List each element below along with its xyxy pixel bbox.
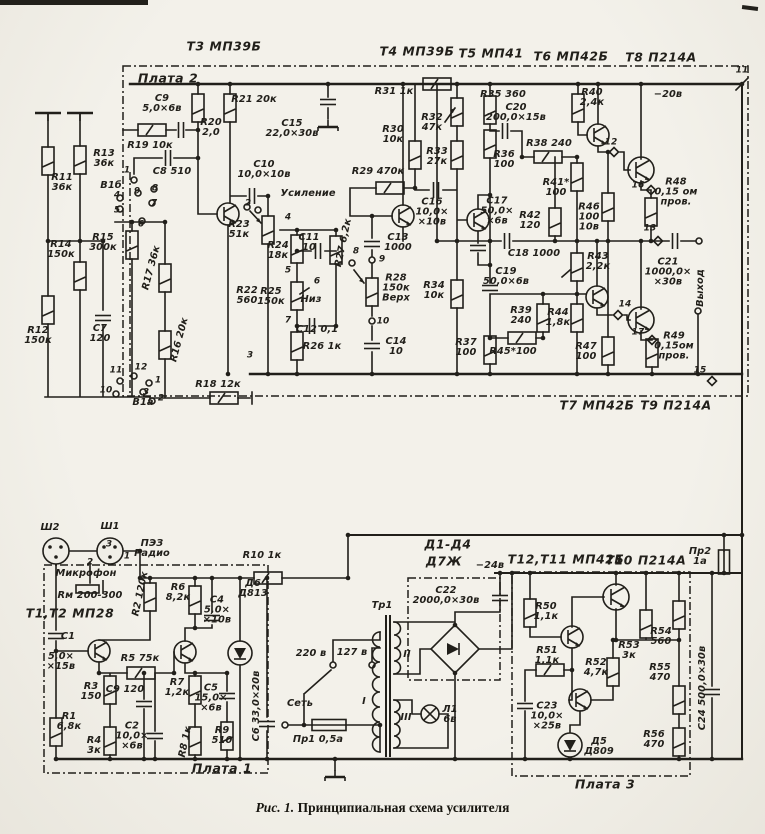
transistor-header-t9: Т9 П214А: [640, 400, 712, 413]
component-label: R41* 100: [543, 178, 570, 198]
component-label: R14 150к: [47, 240, 75, 260]
component-label: R11 36к: [51, 173, 72, 193]
component-label: R19 10к: [127, 141, 173, 151]
tap-127v: 127 в: [337, 648, 368, 658]
component-label: 3: [106, 540, 112, 549]
component-label: R40 2,4к: [580, 88, 604, 108]
component-label: R3 150: [81, 682, 102, 702]
mains-label: Сеть: [287, 699, 313, 709]
winding-3: III: [400, 713, 411, 723]
component-label: R35 360: [480, 90, 526, 100]
transistor-header-t5: Т5 МП41: [458, 48, 523, 61]
component-label: С7 120: [90, 324, 111, 344]
bass-control-label: Низ: [300, 295, 321, 305]
component-label: С14 10: [385, 337, 406, 357]
component-label: С18 1000: [508, 249, 560, 259]
transistor-header-t3: Т3 МП39Б: [186, 41, 261, 54]
component-label: R45*100: [489, 347, 536, 357]
transistor-header-t6: Т6 МП42Б: [533, 51, 608, 64]
component-label: 10: [377, 317, 390, 326]
component-label: 13: [644, 224, 657, 233]
component-label: R54 560: [650, 627, 671, 647]
component-label: R37 100: [455, 338, 476, 358]
component-label: С4 5,0× ×10в: [203, 596, 231, 627]
component-label: R39 240: [510, 306, 531, 326]
figure-number: Рис. 1.: [256, 800, 295, 815]
winding-1: I: [362, 697, 366, 707]
component-label: R30 10к: [382, 125, 403, 145]
component-label: С15 22,0×30в: [265, 119, 318, 139]
component-label: С16 10,0× ×10в: [416, 198, 449, 229]
component-label: R28 150к Верх: [382, 274, 410, 305]
figure-caption: Рис. 1. Принципиальная схема усилителя: [0, 800, 765, 816]
component-label: R8 1к: [178, 725, 195, 758]
component-label: С9 120: [106, 685, 144, 695]
tap-220v: 220 в: [296, 649, 327, 659]
component-label: R51 1,1к: [535, 646, 559, 666]
component-label: R18 12к: [195, 380, 241, 390]
labels-layer: Т3 МП39БТ4 МП39БТ5 МП41Т6 МП42БТ8 П214АТ…: [0, 0, 765, 834]
component-label: С19 50,0×6в: [483, 267, 529, 287]
component-label: С1: [61, 632, 75, 642]
microphone-impedance: Rм 200-300: [58, 591, 123, 601]
microphone-label: Микрофон: [55, 569, 116, 579]
supply-label-20v: −20в: [654, 90, 682, 100]
component-label: С11 10: [298, 233, 319, 253]
component-label: 10: [100, 386, 113, 395]
schematic-page: Т3 МП39БТ4 МП39БТ5 МП41Т6 МП42БТ8 П214АТ…: [0, 0, 765, 834]
transistor-header-t4: Т4 МП39Б: [379, 46, 454, 59]
component-label: 4: [114, 191, 120, 200]
component-label: 12: [605, 138, 618, 147]
output-label: Выход: [696, 269, 706, 307]
component-label: R32 47к: [421, 113, 442, 133]
component-label: R25 150к: [257, 287, 285, 307]
diode-header-type: Д7Ж: [426, 556, 462, 569]
component-label: С21 1000,0× ×30в: [645, 258, 692, 289]
component-label: R1 6,8к: [57, 712, 81, 732]
component-label: 1: [124, 166, 130, 175]
component-label: 2: [87, 558, 93, 567]
supply-label-24v: −24в: [476, 561, 504, 571]
component-label: R10 1к: [243, 551, 282, 561]
component-label: R44 1,8к: [546, 308, 570, 328]
component-label: R42 120: [519, 211, 540, 231]
figure-title: Принципиальная схема усилителя: [298, 800, 510, 815]
component-label: 6: [138, 220, 144, 229]
component-label: R15 300к: [89, 233, 117, 253]
component-label: R38 240: [526, 139, 572, 149]
component-label: 12: [135, 363, 148, 372]
component-label: 5: [285, 266, 291, 275]
component-label: С2 10,0× ×6в: [116, 722, 149, 753]
component-label: 11: [736, 66, 749, 75]
component-label: 6: [314, 277, 320, 286]
component-label: Д6 Д813: [238, 579, 268, 599]
component-label: С13 1000: [384, 233, 412, 253]
component-label: 8: [353, 247, 359, 256]
component-label: R56 470: [643, 730, 664, 750]
component-label: 11: [110, 366, 123, 375]
connector-sh1: Ш1: [100, 522, 119, 532]
component-label: 4: [285, 213, 291, 222]
fuse-1-label: Пр1 0,5а: [293, 735, 343, 745]
component-label: R7 1,2к: [165, 678, 189, 698]
component-label: R50 1,1к: [534, 602, 558, 622]
component-label: С20 200,0×15в: [486, 103, 546, 123]
component-label: С8 510: [153, 167, 191, 177]
component-label: С5 15,0× ×6в: [195, 684, 228, 715]
board-label-1: Плата 1: [192, 762, 252, 775]
component-label: С22 2000,0×30в: [413, 586, 480, 606]
board-label-3: Плата 3: [575, 778, 635, 791]
winding-2: II: [403, 650, 411, 660]
component-label: R47 100: [575, 342, 596, 362]
component-label: 17: [632, 328, 645, 337]
component-label: R16 20к: [169, 317, 191, 364]
volume-control-label: Усиление: [280, 189, 335, 199]
component-label: R36 100: [493, 150, 514, 170]
component-label: R12 150к: [24, 326, 52, 346]
component-label: 5: [114, 206, 120, 215]
component-label: R46 100 10в: [578, 203, 599, 234]
component-label: 7: [285, 316, 291, 325]
component-label: R27 6,2к: [334, 218, 354, 268]
component-label: С12 0,1: [296, 325, 338, 335]
component-label: 5,0× ×15в: [47, 652, 75, 672]
component-label: 8: [152, 184, 158, 193]
transistor-header-t10: Т10 П214А: [606, 555, 687, 568]
component-label: С9 5,0×6в: [142, 94, 181, 114]
lamp-label: Л1 6в: [442, 705, 457, 725]
component-label: 3: [247, 351, 253, 360]
component-label: R55 470: [649, 663, 670, 683]
component-label: 2: [245, 199, 251, 208]
component-label: 3: [143, 388, 149, 397]
board-label-2: Плата 2: [138, 72, 198, 85]
component-label: R53 3к: [618, 641, 639, 661]
component-label: R31 1к: [375, 87, 414, 97]
component-label: 16: [632, 181, 645, 190]
component-label: С10 10,0×10в: [237, 160, 290, 180]
component-label: Д5 Д809: [584, 737, 614, 757]
component-label: 1: [155, 376, 161, 385]
component-label: 2: [158, 394, 164, 403]
component-label: 9: [134, 187, 140, 196]
radio-input-label: ПЭЗ Радио: [134, 539, 170, 559]
component-label: R43 2,2к: [586, 252, 610, 272]
component-label: С6 33,0×20в: [252, 671, 262, 742]
transistor-header-t7: Т7 МП42Б: [559, 400, 634, 413]
transistor-header-t8: Т8 П214А: [625, 52, 697, 65]
component-label: R6 8,2к: [166, 583, 190, 603]
transformer-label: Тр1: [372, 601, 393, 611]
component-label: 9: [379, 255, 385, 264]
connector-sh2: Ш2: [40, 523, 59, 533]
component-label: 1: [124, 552, 130, 561]
component-label: R20 2,0: [200, 118, 221, 138]
component-label: R17 36к: [141, 245, 163, 292]
component-label: R26 1к: [303, 342, 342, 352]
component-label: R2 120к: [131, 571, 150, 618]
component-label: С23 10,0× ×25в: [531, 702, 564, 733]
component-label: R5 75к: [121, 654, 160, 664]
component-label: С24 500,0×30в: [698, 646, 708, 731]
fuse-2-label: Пр2 1а: [689, 547, 711, 567]
component-label: R9 510: [212, 726, 233, 746]
component-label: R49 0,15ом пров.: [654, 332, 694, 363]
component-label: R52 4,7к: [584, 658, 608, 678]
transistor-header-t1-t2: Т1,Т2 МП28: [26, 608, 114, 621]
component-label: R4 3к: [87, 736, 102, 756]
component-label: 15: [694, 366, 707, 375]
component-label: R34 10к: [423, 281, 444, 301]
component-label: R33 27к: [426, 147, 447, 167]
switch-v1a: В1а: [132, 398, 153, 408]
diode-header-d1-d4: Д1-Д4: [424, 539, 471, 552]
component-label: R48 0,15 ом пров.: [654, 178, 697, 209]
component-label: R23 51к: [228, 220, 249, 240]
component-label: 7: [151, 199, 157, 208]
component-label: R24 18к: [267, 241, 288, 261]
component-label: R29 470к: [352, 167, 405, 177]
component-label: 14: [619, 300, 632, 309]
component-label: С17 50,0× ×6в: [481, 197, 514, 228]
component-label: R21 20к: [231, 95, 277, 105]
component-label: R22 560: [236, 286, 257, 306]
component-label: R13 36к: [93, 149, 114, 169]
